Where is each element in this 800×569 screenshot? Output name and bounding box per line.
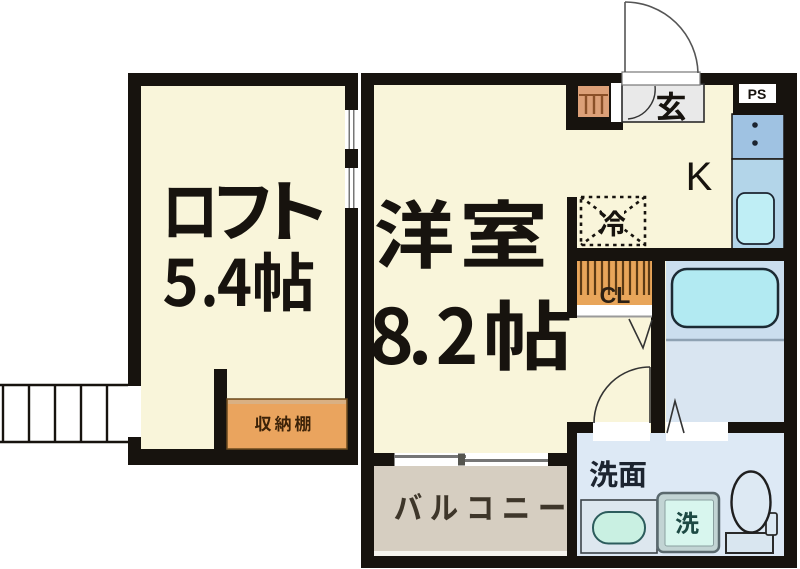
svg-text:K: K: [686, 155, 713, 199]
svg-text:CL: CL: [600, 282, 631, 308]
svg-text:PS: PS: [748, 86, 767, 102]
